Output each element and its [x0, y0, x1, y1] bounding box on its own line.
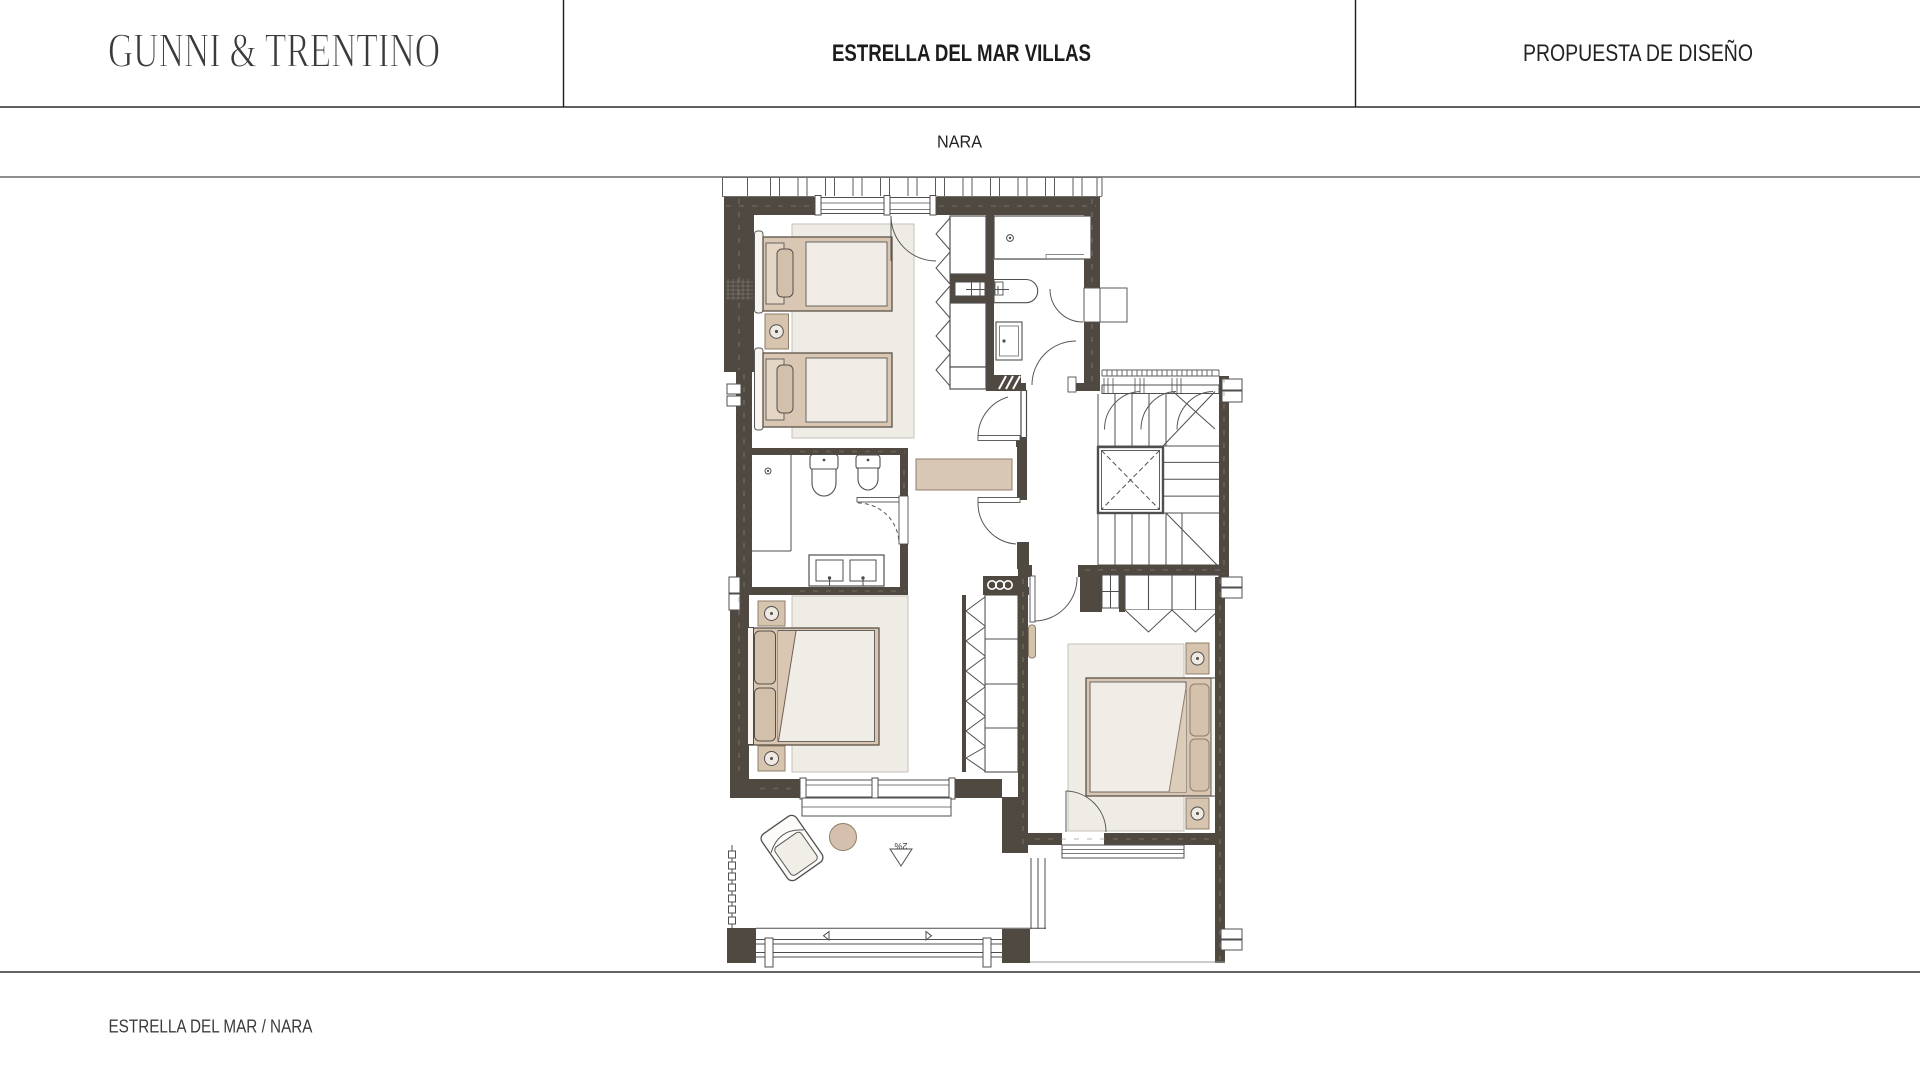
svg-text:NARA: NARA: [937, 132, 982, 152]
svg-text:PROPUESTA DE DISEÑO: PROPUESTA DE DISEÑO: [1523, 40, 1753, 67]
svg-text:GUNNI & TRENTINO: GUNNI & TRENTINO: [108, 23, 440, 78]
svg-text:ESTRELLA DEL MAR VILLAS: ESTRELLA DEL MAR VILLAS: [832, 40, 1091, 67]
svg-text:ESTRELLA DEL MAR / NARA: ESTRELLA DEL MAR / NARA: [109, 1016, 314, 1037]
svg-text:2%: 2%: [894, 841, 907, 851]
